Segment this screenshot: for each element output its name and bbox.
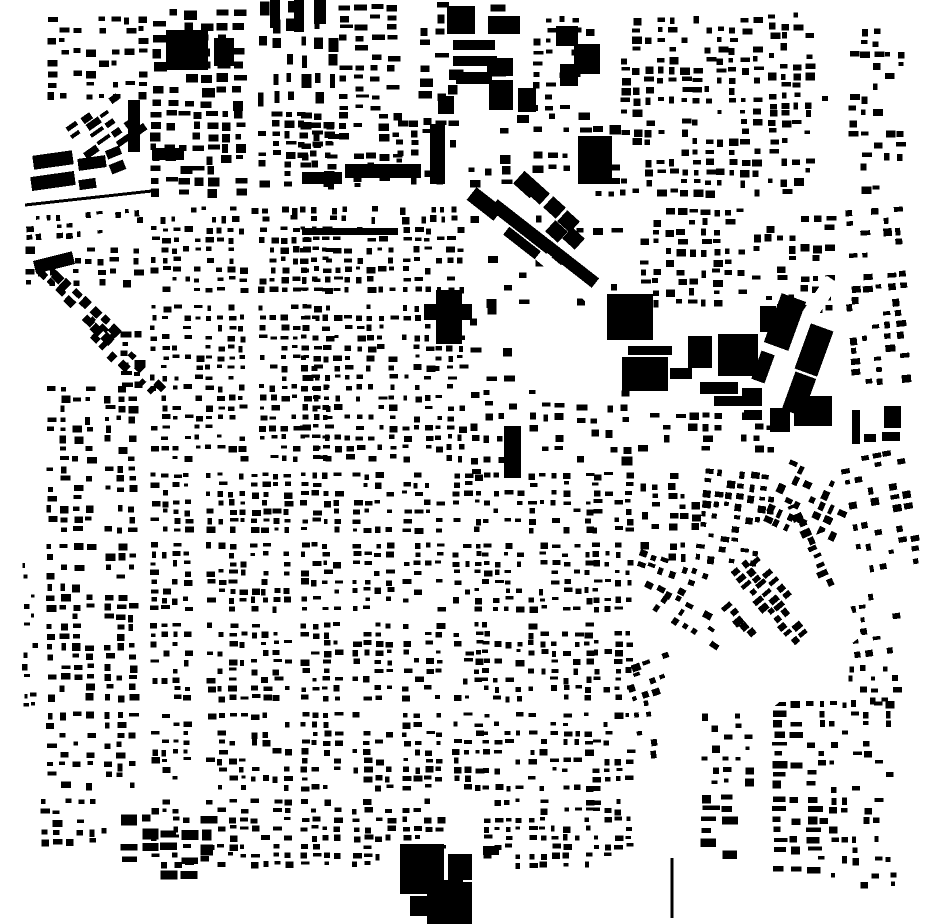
building xyxy=(324,356,329,362)
building xyxy=(183,750,187,754)
building xyxy=(324,396,329,400)
building xyxy=(152,315,156,321)
building xyxy=(506,827,510,832)
building xyxy=(229,316,236,320)
large-building-footprint xyxy=(424,304,472,320)
building xyxy=(217,472,222,475)
building xyxy=(303,712,310,716)
building xyxy=(702,239,712,244)
building xyxy=(484,686,489,690)
building xyxy=(154,62,167,71)
building xyxy=(334,685,340,691)
building xyxy=(196,396,202,401)
building xyxy=(646,98,651,105)
building xyxy=(217,807,226,812)
building xyxy=(387,542,395,548)
building xyxy=(313,844,320,850)
building xyxy=(873,109,883,116)
large-building xyxy=(670,368,692,379)
building xyxy=(626,827,632,831)
building xyxy=(353,472,361,476)
building xyxy=(117,634,125,641)
building xyxy=(234,111,242,119)
building xyxy=(151,659,159,662)
building xyxy=(286,112,292,117)
building xyxy=(252,825,260,831)
building xyxy=(303,414,309,419)
building xyxy=(302,607,307,610)
building xyxy=(454,570,460,573)
large-building xyxy=(448,854,472,880)
building xyxy=(356,426,364,430)
building xyxy=(252,767,260,771)
building xyxy=(163,287,171,292)
building xyxy=(130,476,136,481)
building xyxy=(689,288,694,295)
building xyxy=(621,391,629,397)
building xyxy=(530,835,537,840)
building xyxy=(301,861,310,864)
building xyxy=(263,687,272,691)
building xyxy=(900,282,907,288)
building xyxy=(117,733,124,738)
building xyxy=(366,152,376,158)
building xyxy=(541,632,549,637)
building xyxy=(262,500,267,506)
building xyxy=(112,49,120,54)
building xyxy=(849,120,857,127)
building xyxy=(162,396,166,401)
building xyxy=(820,720,825,727)
building xyxy=(616,768,622,771)
building xyxy=(98,16,105,21)
building xyxy=(575,685,582,689)
building xyxy=(626,817,630,821)
building xyxy=(529,623,538,629)
building xyxy=(454,767,462,773)
building xyxy=(420,39,430,45)
building xyxy=(543,414,548,421)
building xyxy=(390,315,399,319)
building xyxy=(447,258,453,263)
building xyxy=(219,740,225,744)
building xyxy=(860,665,865,671)
building xyxy=(577,456,584,463)
building xyxy=(186,74,198,82)
building xyxy=(564,844,572,850)
building xyxy=(128,507,134,513)
building xyxy=(414,658,419,663)
building xyxy=(616,799,620,804)
building xyxy=(302,519,308,523)
building xyxy=(221,155,231,163)
building xyxy=(302,740,310,744)
building xyxy=(852,837,856,843)
building xyxy=(516,863,520,869)
building xyxy=(605,430,612,438)
building xyxy=(183,473,189,477)
building xyxy=(260,436,265,440)
building xyxy=(765,234,772,241)
building xyxy=(353,528,357,531)
building xyxy=(483,731,488,735)
building xyxy=(205,376,212,380)
building xyxy=(505,642,511,649)
building xyxy=(87,603,95,607)
building xyxy=(414,714,421,719)
building xyxy=(540,799,548,803)
building xyxy=(627,560,633,565)
building xyxy=(831,742,838,748)
building xyxy=(300,248,305,252)
building xyxy=(251,714,260,720)
building xyxy=(689,413,699,421)
building xyxy=(216,86,226,92)
building xyxy=(577,405,588,411)
building xyxy=(563,473,571,479)
building xyxy=(129,565,134,570)
building xyxy=(217,315,223,319)
building xyxy=(61,623,68,630)
building xyxy=(562,553,568,557)
building xyxy=(794,93,800,98)
large-building-footprint xyxy=(864,434,876,442)
building xyxy=(886,721,891,728)
building xyxy=(586,598,592,604)
building xyxy=(387,818,396,824)
large-building xyxy=(452,882,472,924)
building xyxy=(353,510,360,515)
building xyxy=(312,161,318,168)
building xyxy=(151,590,159,594)
building xyxy=(530,607,539,613)
building xyxy=(73,526,83,531)
building xyxy=(388,257,393,263)
building xyxy=(259,335,267,338)
building xyxy=(782,24,789,30)
building xyxy=(128,615,133,623)
building xyxy=(389,356,398,362)
building xyxy=(86,683,95,690)
building xyxy=(322,544,327,549)
building xyxy=(322,257,328,260)
building xyxy=(718,27,724,31)
building xyxy=(174,862,182,868)
building xyxy=(621,58,627,64)
building xyxy=(411,131,417,138)
building xyxy=(126,28,136,33)
building xyxy=(229,580,238,584)
building xyxy=(502,166,510,174)
building xyxy=(605,551,609,556)
building xyxy=(658,130,664,134)
building xyxy=(150,623,157,629)
building xyxy=(48,38,56,44)
building xyxy=(313,236,319,240)
building xyxy=(884,218,889,224)
building xyxy=(74,565,84,571)
building xyxy=(328,54,337,65)
building xyxy=(495,641,502,647)
building xyxy=(228,685,237,691)
building xyxy=(339,123,346,129)
building xyxy=(615,526,623,530)
building xyxy=(724,501,729,506)
building xyxy=(780,64,787,68)
building xyxy=(488,256,498,263)
large-building-footprint xyxy=(822,96,828,101)
building xyxy=(703,424,709,432)
building xyxy=(281,256,285,261)
building xyxy=(110,268,116,273)
building xyxy=(669,78,677,82)
building xyxy=(314,288,323,292)
building xyxy=(564,807,569,811)
building xyxy=(162,632,169,637)
building xyxy=(831,873,835,877)
building xyxy=(392,132,399,137)
building xyxy=(425,395,431,401)
building xyxy=(151,336,157,341)
building xyxy=(239,759,245,762)
building xyxy=(59,544,67,548)
building xyxy=(742,128,749,134)
building xyxy=(749,484,755,492)
building xyxy=(236,123,245,128)
building xyxy=(285,800,292,806)
large-building-footprint xyxy=(214,38,234,66)
building xyxy=(364,777,373,783)
building xyxy=(626,759,633,763)
building xyxy=(426,229,431,235)
building xyxy=(415,677,424,682)
building xyxy=(273,518,279,524)
building xyxy=(273,632,277,636)
building xyxy=(386,732,393,738)
building xyxy=(207,509,214,514)
building xyxy=(372,206,378,211)
building xyxy=(263,551,269,556)
building xyxy=(363,799,371,805)
building xyxy=(85,259,91,264)
building xyxy=(731,537,738,542)
building xyxy=(293,446,301,452)
building xyxy=(344,248,352,253)
building xyxy=(150,570,159,575)
building xyxy=(563,863,568,867)
building xyxy=(404,278,412,281)
building xyxy=(235,134,241,139)
building xyxy=(452,562,459,567)
building xyxy=(164,650,170,656)
building xyxy=(742,68,749,75)
building xyxy=(886,772,893,777)
building xyxy=(454,758,458,764)
building xyxy=(274,91,279,103)
building xyxy=(105,664,111,671)
building xyxy=(324,633,329,639)
building xyxy=(863,741,870,747)
building xyxy=(251,854,260,857)
building xyxy=(90,829,95,836)
building xyxy=(217,23,228,31)
building xyxy=(229,606,235,611)
building xyxy=(106,553,116,561)
building xyxy=(379,134,390,142)
building xyxy=(208,579,216,583)
building xyxy=(403,266,409,271)
building xyxy=(755,446,764,453)
building xyxy=(301,386,308,391)
building xyxy=(282,376,287,381)
building xyxy=(721,795,732,800)
building xyxy=(702,490,711,498)
building xyxy=(529,598,534,603)
building xyxy=(345,415,351,419)
building xyxy=(240,817,248,821)
building xyxy=(818,760,826,765)
building xyxy=(174,474,182,478)
building xyxy=(121,351,128,357)
building xyxy=(185,436,191,439)
building xyxy=(174,305,182,309)
building xyxy=(228,492,233,498)
building xyxy=(552,659,558,662)
building xyxy=(240,366,245,369)
large-building-footprint xyxy=(452,882,472,924)
building xyxy=(794,24,804,30)
building xyxy=(116,615,125,620)
building xyxy=(386,597,391,601)
building xyxy=(774,827,781,833)
building xyxy=(403,650,409,655)
building xyxy=(330,216,337,220)
building xyxy=(217,238,224,242)
building xyxy=(118,712,123,718)
building xyxy=(240,491,245,496)
building xyxy=(475,607,483,612)
building xyxy=(313,678,317,681)
building xyxy=(284,571,289,575)
building xyxy=(312,386,316,390)
building xyxy=(435,777,442,782)
large-building-footprint xyxy=(560,64,578,86)
building xyxy=(726,480,735,489)
building xyxy=(363,640,371,645)
building xyxy=(457,434,461,441)
building xyxy=(842,837,848,842)
building xyxy=(389,288,395,292)
building xyxy=(302,132,309,137)
building xyxy=(425,268,431,275)
building xyxy=(734,515,741,520)
building xyxy=(376,817,382,821)
building xyxy=(850,51,860,56)
building xyxy=(179,189,189,194)
building xyxy=(363,741,369,745)
building xyxy=(486,376,497,381)
building xyxy=(274,528,278,531)
building xyxy=(585,741,593,745)
building xyxy=(404,316,412,320)
building xyxy=(47,573,55,580)
building xyxy=(529,528,533,534)
building xyxy=(782,138,788,143)
building xyxy=(201,207,206,211)
building xyxy=(207,258,214,263)
building xyxy=(47,634,55,640)
building xyxy=(365,827,371,833)
building xyxy=(77,231,81,237)
building xyxy=(483,390,489,395)
building xyxy=(284,767,290,772)
building xyxy=(402,786,411,790)
building xyxy=(105,604,111,611)
building xyxy=(229,326,236,329)
building xyxy=(301,578,309,584)
building xyxy=(701,817,716,821)
building xyxy=(218,862,226,867)
building xyxy=(312,276,318,281)
building xyxy=(862,253,868,258)
building xyxy=(614,845,623,850)
building xyxy=(240,642,245,648)
building xyxy=(301,695,309,700)
building xyxy=(413,483,417,489)
large-building-footprint xyxy=(744,410,762,420)
building xyxy=(206,416,212,419)
building xyxy=(465,474,474,478)
building xyxy=(447,277,455,281)
building xyxy=(826,216,836,220)
building xyxy=(139,26,144,31)
building xyxy=(701,828,711,833)
building xyxy=(129,713,139,717)
building xyxy=(863,286,873,293)
building xyxy=(87,761,93,765)
building xyxy=(454,695,462,701)
building xyxy=(166,177,178,182)
building xyxy=(875,798,884,802)
building xyxy=(770,104,777,109)
building xyxy=(172,852,178,857)
building xyxy=(183,721,192,727)
building xyxy=(251,518,257,523)
building xyxy=(241,713,248,717)
building xyxy=(437,14,444,23)
building xyxy=(354,4,367,10)
building xyxy=(129,435,136,442)
building xyxy=(48,674,56,679)
building xyxy=(459,427,467,433)
building xyxy=(273,659,282,662)
building xyxy=(195,177,204,186)
building xyxy=(252,624,260,628)
building xyxy=(206,111,218,116)
large-building xyxy=(302,228,398,235)
building xyxy=(782,120,792,127)
building xyxy=(670,169,679,174)
building xyxy=(585,518,591,523)
building xyxy=(218,826,226,831)
building xyxy=(281,445,287,448)
building xyxy=(196,445,201,448)
building xyxy=(353,560,360,563)
building xyxy=(339,6,350,11)
building xyxy=(404,456,411,462)
building xyxy=(300,766,307,772)
building xyxy=(530,413,536,420)
